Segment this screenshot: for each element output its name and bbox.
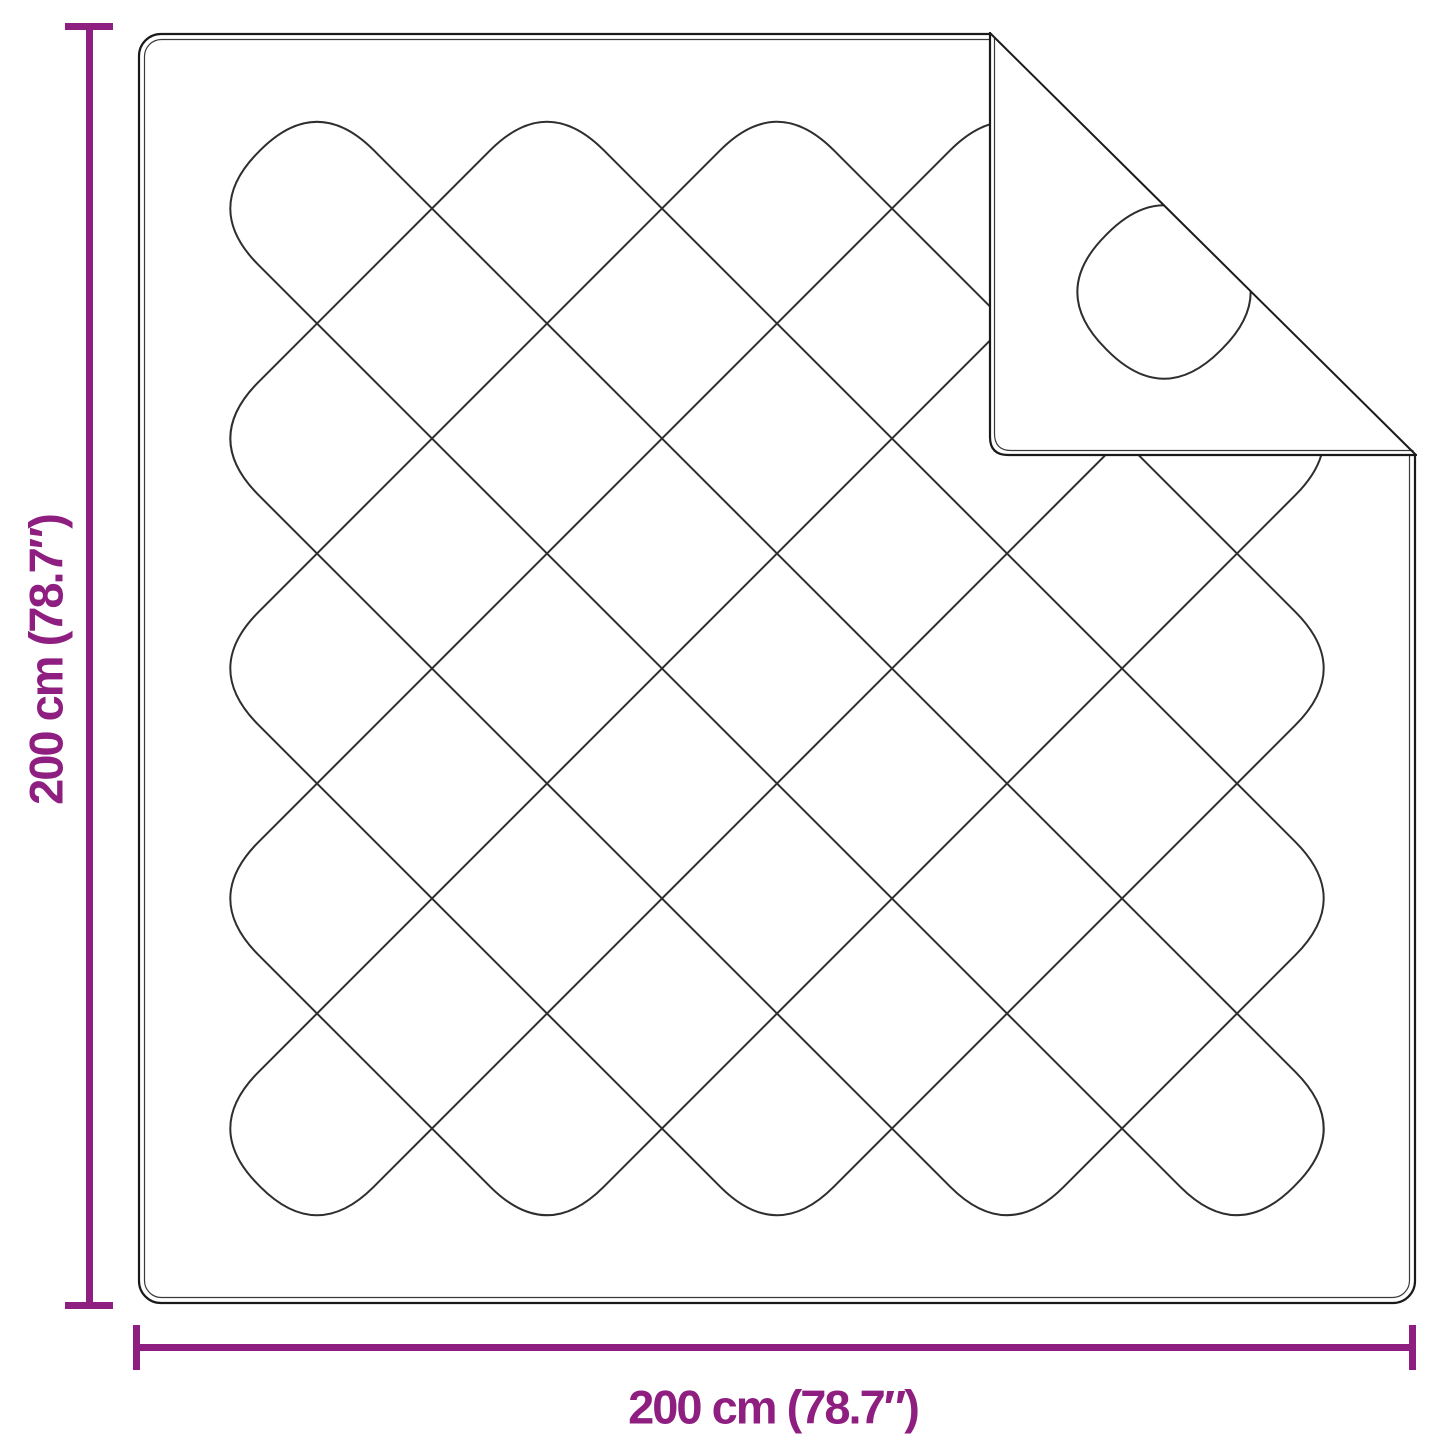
horizontal-dimension-line bbox=[136, 1344, 1412, 1351]
diagram-canvas: 200 cm (78.7″) 200 cm (78.7″) bbox=[0, 0, 1445, 1445]
blanket-edge-outer bbox=[139, 34, 1415, 1303]
blanket-outline bbox=[139, 34, 1415, 1303]
blanket-diagram bbox=[0, 0, 1445, 1445]
vertical-dimension-cap-top bbox=[65, 23, 113, 30]
horizontal-dimension-cap-right bbox=[1409, 1325, 1416, 1370]
vertical-dimension-line bbox=[86, 26, 93, 1305]
vertical-dimension-label: 200 cm (78.7″) bbox=[19, 515, 74, 805]
blanket-edge-inner bbox=[145, 40, 1410, 1298]
vertical-dimension-cap-bottom bbox=[65, 1302, 113, 1309]
horizontal-dimension-cap-left bbox=[133, 1325, 140, 1370]
horizontal-dimension-label: 200 cm (78.7″) bbox=[628, 1380, 918, 1435]
folded-corner bbox=[990, 33, 1416, 455]
